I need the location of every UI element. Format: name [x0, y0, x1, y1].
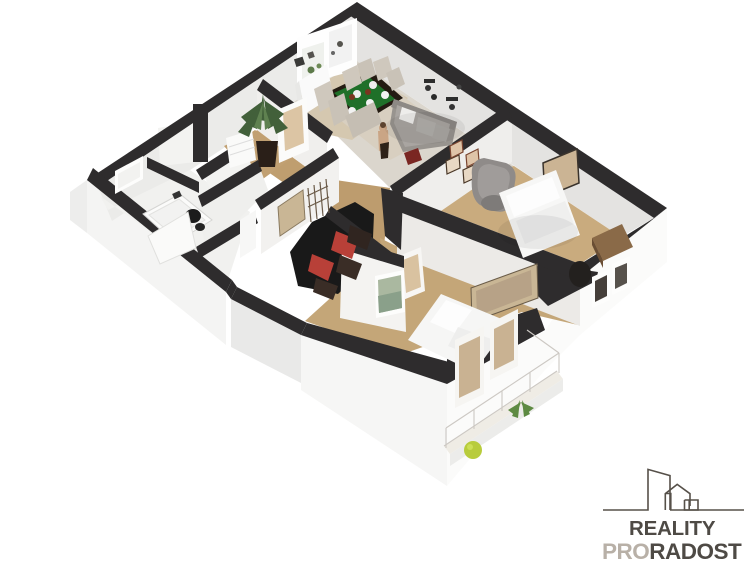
- svg-text:PRORADOST: PRORADOST: [602, 539, 742, 562]
- svg-text:REALITY: REALITY: [629, 517, 716, 540]
